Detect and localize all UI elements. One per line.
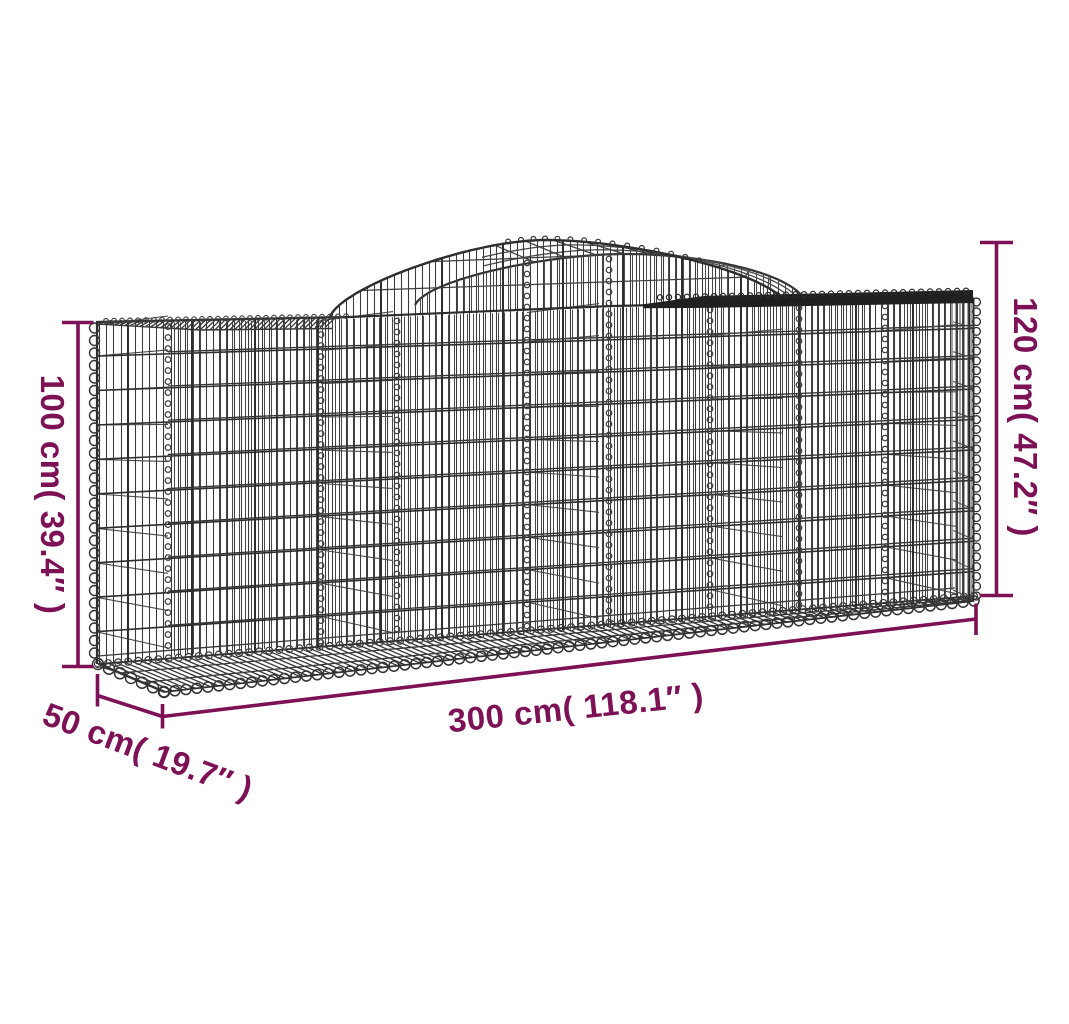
svg-text:120 cm( 47.2″ ): 120 cm( 47.2″ )	[1007, 297, 1044, 537]
svg-text:100 cm( 39.4″ ): 100 cm( 39.4″ )	[34, 375, 71, 615]
